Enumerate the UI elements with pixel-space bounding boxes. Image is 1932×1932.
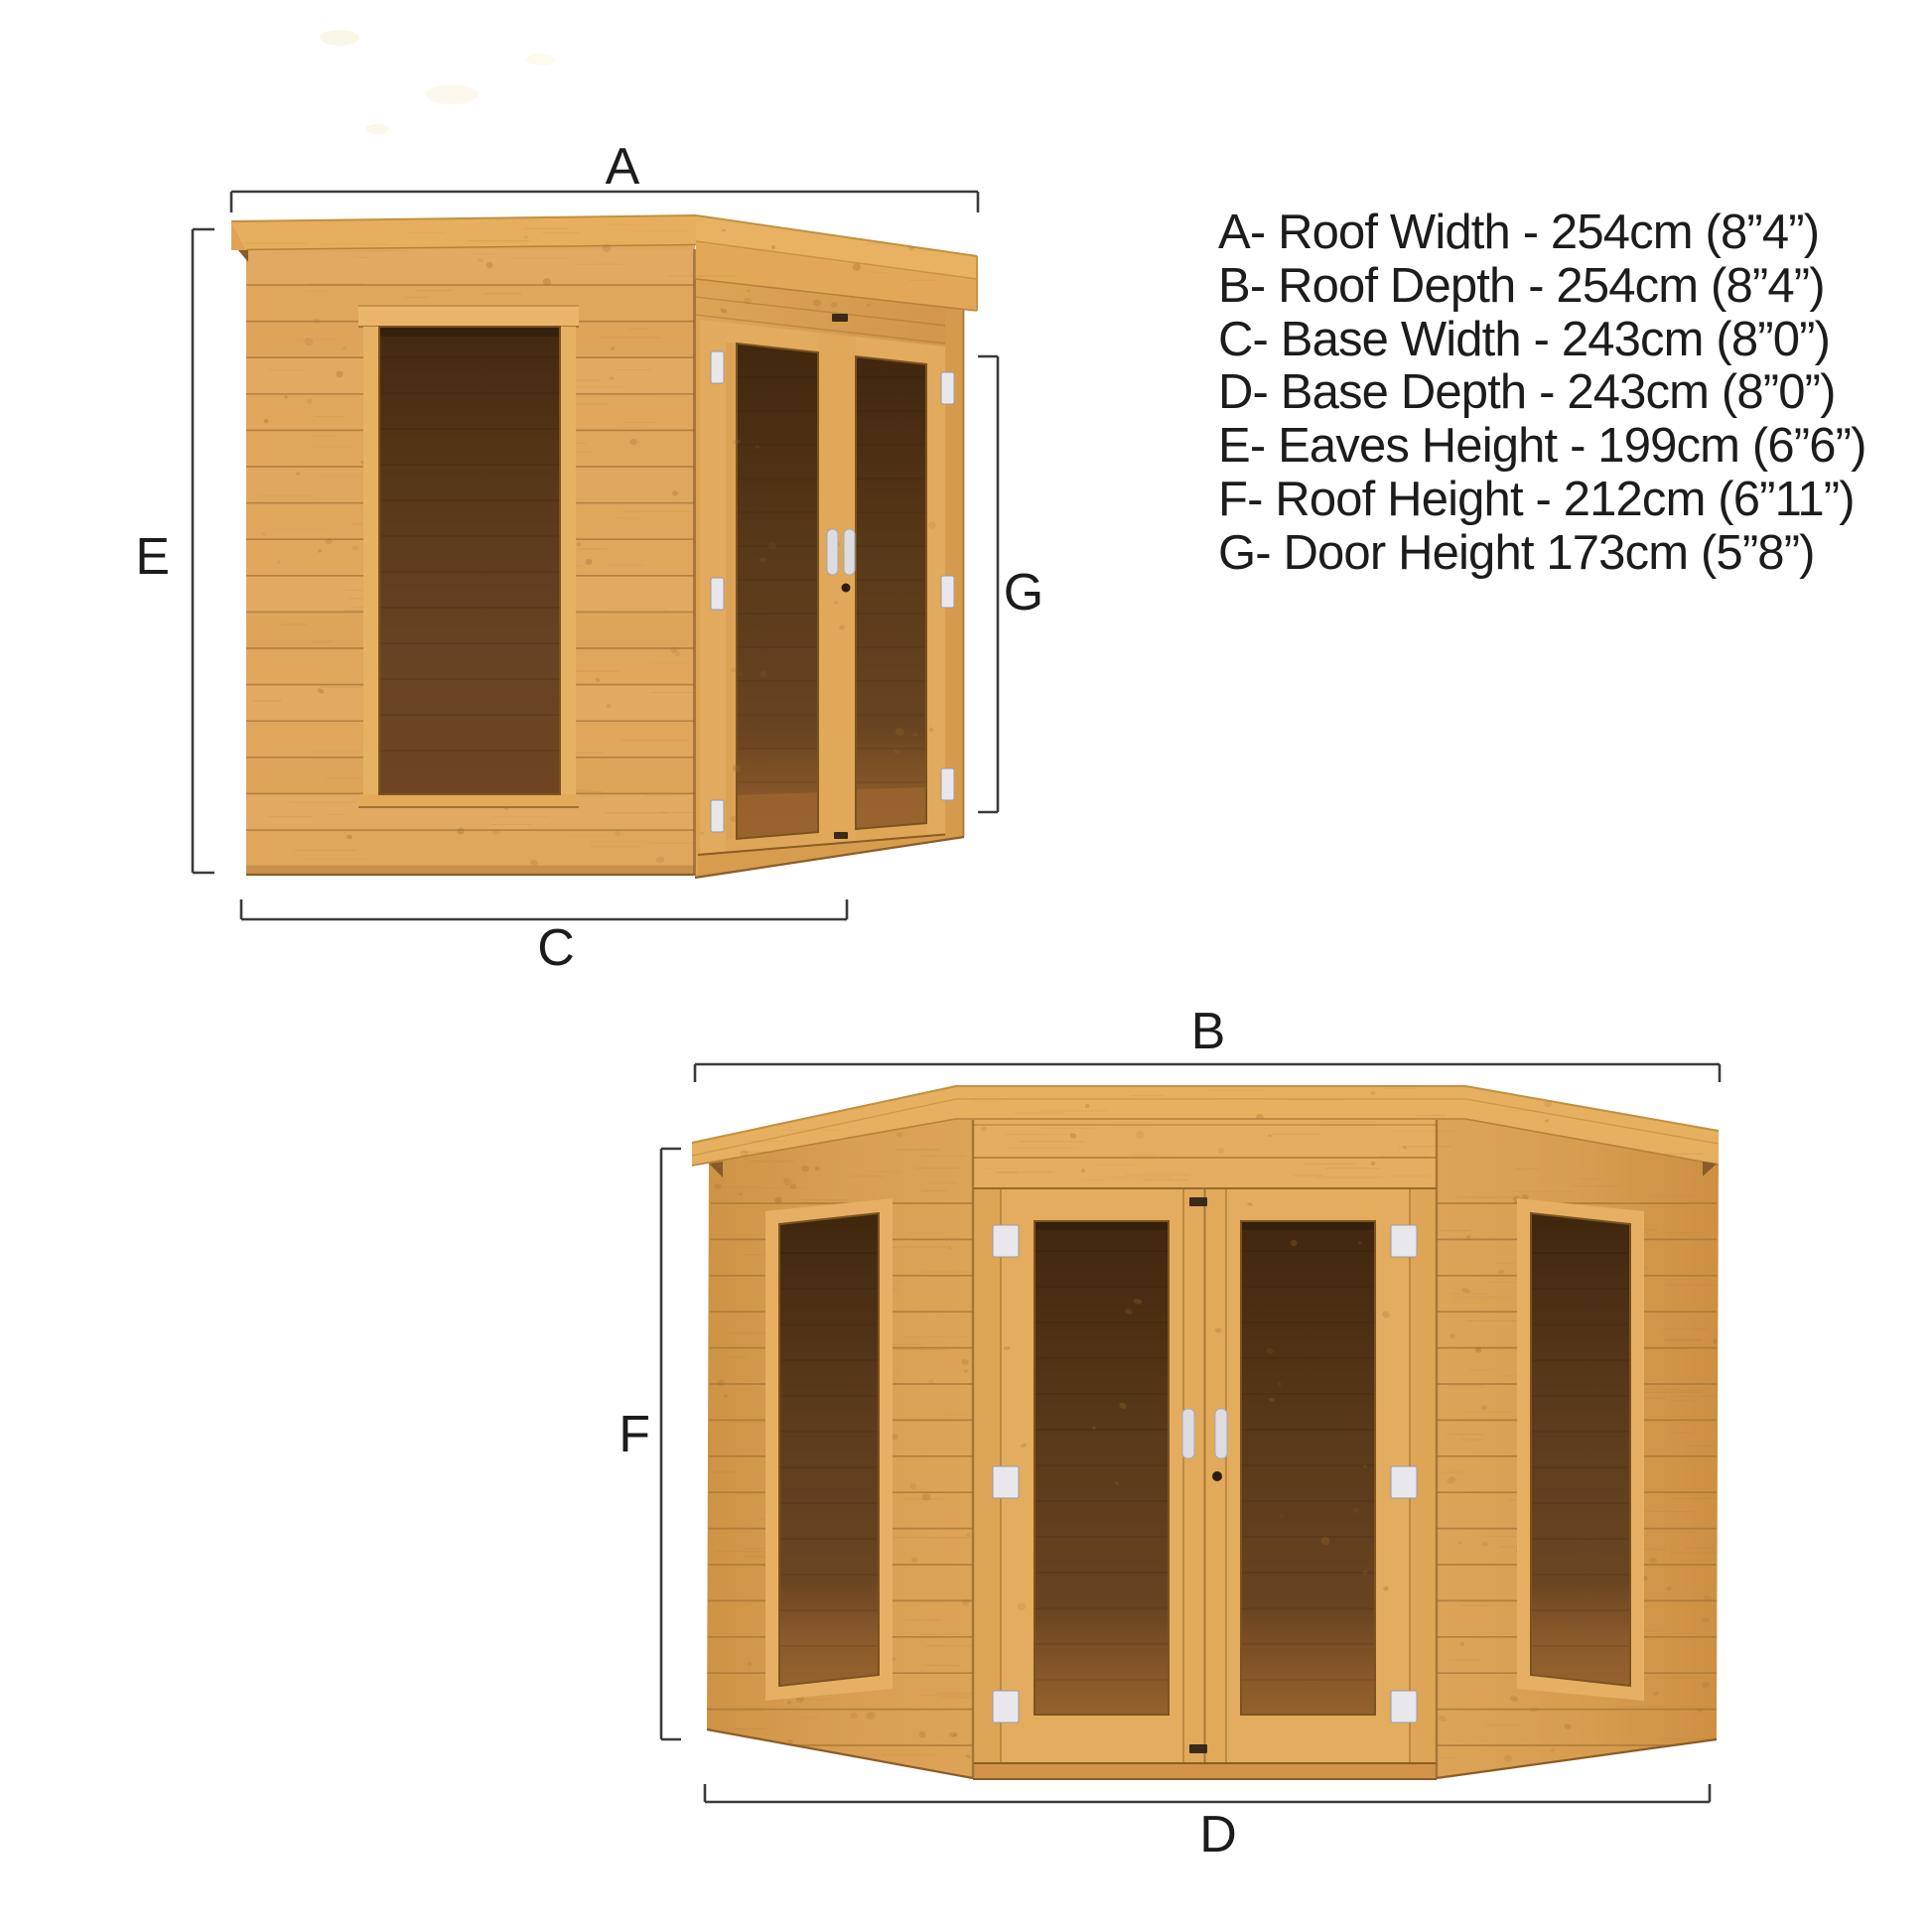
svg-text:A: A — [606, 138, 640, 196]
svg-text:G: G — [1004, 564, 1043, 621]
svg-text:D: D — [1199, 1806, 1237, 1863]
svg-text:C: C — [537, 919, 575, 977]
svg-text:E: E — [135, 528, 170, 586]
svg-text:F: F — [619, 1406, 650, 1463]
svg-text:B: B — [1191, 1003, 1226, 1060]
